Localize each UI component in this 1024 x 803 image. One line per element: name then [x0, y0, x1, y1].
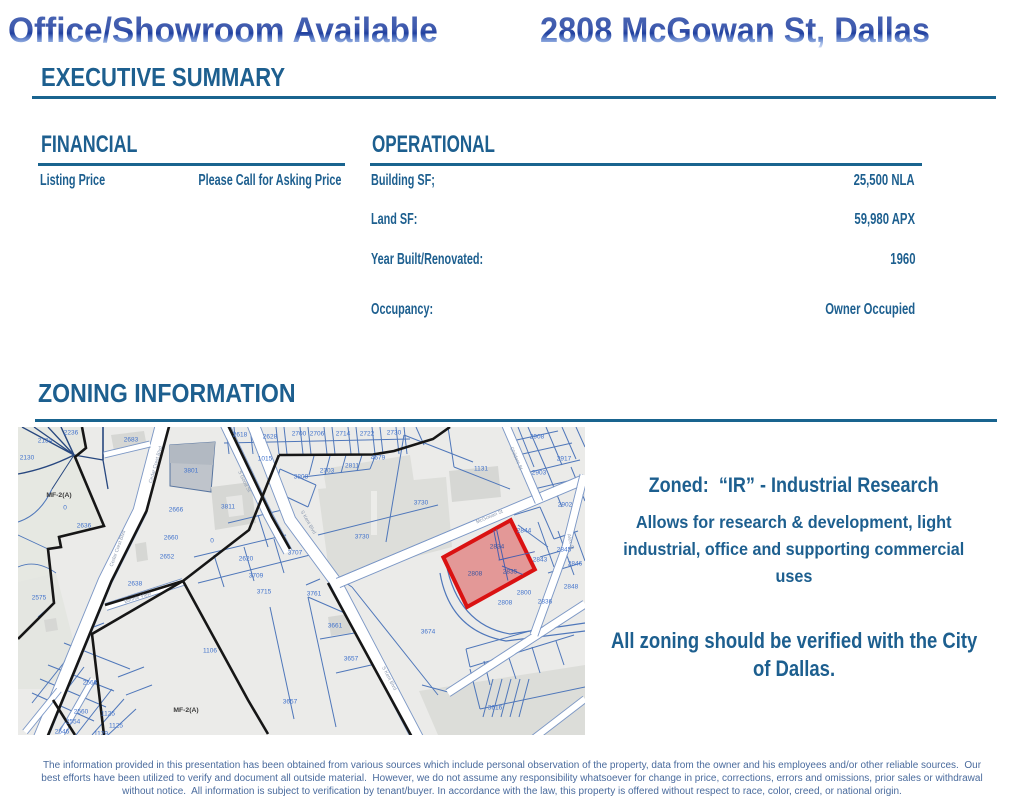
svg-text:1015: 1015	[258, 455, 273, 462]
svg-text:3730: 3730	[355, 533, 370, 540]
svg-text:3730: 3730	[414, 499, 429, 506]
svg-text:2636: 2636	[77, 522, 92, 529]
svg-text:2134: 2134	[38, 437, 53, 444]
svg-text:2834: 2834	[490, 543, 505, 550]
svg-text:2566: 2566	[83, 679, 98, 686]
svg-text:2130: 2130	[20, 454, 35, 461]
svg-text:4679: 4679	[371, 454, 386, 461]
svg-text:3811: 3811	[221, 503, 235, 510]
svg-text:1131: 1131	[474, 465, 488, 472]
svg-text:2683: 2683	[124, 436, 139, 443]
svg-text:2902: 2902	[558, 501, 573, 508]
svg-text:3715: 3715	[257, 588, 272, 595]
svg-text:3761: 3761	[307, 590, 322, 597]
svg-text:2908: 2908	[530, 433, 545, 440]
svg-text:2638: 2638	[128, 580, 143, 587]
svg-text:2714: 2714	[336, 430, 351, 437]
svg-text:2700: 2700	[292, 430, 307, 437]
svg-text:2575: 2575	[32, 594, 47, 601]
svg-text:2660: 2660	[164, 534, 179, 541]
svg-text:2618: 2618	[233, 431, 248, 438]
svg-text:3808: 3808	[294, 473, 309, 480]
svg-text:2844: 2844	[517, 527, 532, 534]
svg-text:2800: 2800	[517, 589, 532, 596]
svg-text:2554: 2554	[66, 718, 81, 725]
svg-text:1125: 1125	[101, 710, 115, 717]
svg-text:3616: 3616	[488, 704, 503, 711]
svg-text:MF-2(A): MF-2(A)	[173, 707, 198, 714]
svg-text:0: 0	[63, 504, 67, 511]
svg-text:MF-2(A): MF-2(A)	[46, 492, 71, 499]
svg-text:2703: 2703	[320, 467, 335, 474]
svg-text:3657: 3657	[344, 655, 359, 662]
svg-text:1106: 1106	[203, 647, 217, 654]
svg-text:2808: 2808	[498, 599, 513, 606]
svg-text:2666: 2666	[169, 506, 184, 513]
svg-text:3709: 3709	[249, 572, 264, 579]
svg-text:3661: 3661	[328, 622, 343, 629]
svg-text:2628: 2628	[263, 433, 278, 440]
svg-text:3674: 3674	[421, 628, 436, 635]
svg-text:2808: 2808	[468, 570, 483, 577]
svg-text:2917: 2917	[557, 455, 572, 462]
svg-text:2236: 2236	[64, 429, 79, 436]
svg-text:0: 0	[210, 537, 214, 544]
svg-text:2620: 2620	[239, 555, 254, 562]
svg-text:1129: 1129	[94, 730, 108, 735]
svg-text:2730: 2730	[387, 429, 402, 436]
svg-text:1125: 1125	[109, 722, 123, 729]
svg-text:2560: 2560	[74, 708, 89, 715]
svg-text:2835: 2835	[503, 568, 518, 575]
svg-text:2652: 2652	[160, 553, 175, 560]
svg-text:2722: 2722	[360, 430, 375, 437]
svg-text:2706: 2706	[310, 430, 325, 437]
svg-text:2836: 2836	[538, 598, 553, 605]
svg-text:2811: 2811	[345, 462, 359, 469]
svg-text:3801: 3801	[184, 467, 199, 474]
svg-text:2546: 2546	[55, 728, 70, 735]
svg-text:3707: 3707	[288, 549, 303, 556]
svg-text:3657: 3657	[283, 698, 298, 705]
